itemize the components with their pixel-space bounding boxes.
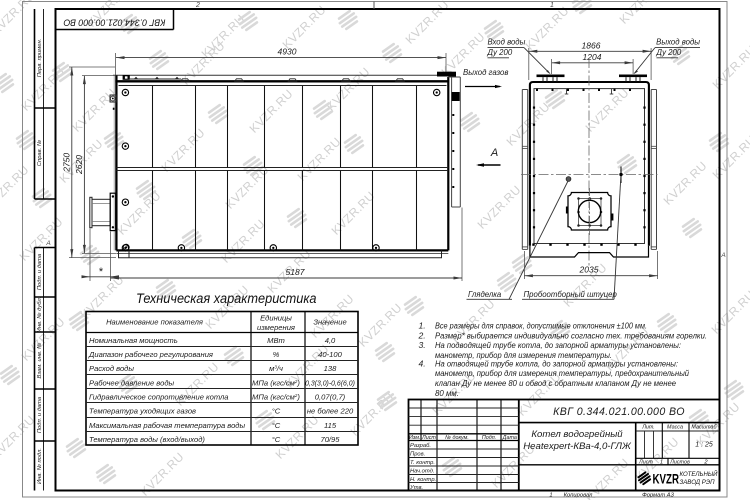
svg-text:40-100: 40-100 <box>318 350 342 359</box>
svg-text:Максимальная рабочая температу: Максимальная рабочая температура воды <box>89 421 246 430</box>
svg-text:Листов: Листов <box>669 459 690 465</box>
svg-text:Подп.: Подп. <box>482 435 496 441</box>
svg-text:Единицы: Единицы <box>260 314 292 323</box>
svg-text:КВГ 0.344.021.00.000 ВО: КВГ 0.344.021.00.000 ВО <box>553 406 685 418</box>
svg-text:4930: 4930 <box>278 47 297 57</box>
svg-text:Все размеры для справок, допус: Все размеры для справок, допустимые откл… <box>435 321 647 331</box>
svg-text:Вход воды: Вход воды <box>488 38 526 47</box>
svg-text:%: % <box>273 350 280 359</box>
svg-text:Копировал: Копировал <box>564 492 594 498</box>
svg-text:0,07(0,7): 0,07(0,7) <box>315 392 346 401</box>
svg-text:МВт: МВт <box>267 336 285 345</box>
svg-text:1: 1 <box>550 2 554 9</box>
svg-text:3.: 3. <box>419 340 426 350</box>
svg-text:ЗАВОД РЭП: ЗАВОД РЭП <box>680 479 715 486</box>
svg-text:Номинальная мощность: Номинальная мощность <box>89 336 178 345</box>
svg-text:манометр, прибор для измерения: манометр, прибор для измерения температу… <box>435 368 689 378</box>
svg-text:На отводящей трубе котла, до з: На отводящей трубе котла, до запорной ар… <box>435 358 679 368</box>
svg-text:2620: 2620 <box>74 155 84 175</box>
svg-text:Выход воды: Выход воды <box>656 38 700 47</box>
svg-text:Расход воды: Расход воды <box>89 364 134 373</box>
svg-text:1 : 25: 1 : 25 <box>695 442 713 449</box>
svg-text:Масса: Масса <box>667 425 683 431</box>
svg-text:Котел водогрейный: Котел водогрейный <box>531 429 623 440</box>
svg-text:Изм.: Изм. <box>409 435 421 441</box>
svg-text:°С: °С <box>272 421 281 430</box>
svg-text:м3/ч: м3/ч <box>269 364 283 373</box>
svg-text:Наименование показателя: Наименование показателя <box>106 318 203 327</box>
svg-text:не более 220: не более 220 <box>307 407 354 416</box>
svg-text:Температура воды (вход/выход): Температура воды (вход/выход) <box>89 435 205 444</box>
svg-text:°С: °С <box>272 407 281 416</box>
svg-text:1: 1 <box>549 492 552 498</box>
svg-text:2035: 2035 <box>579 265 599 275</box>
svg-text:Диапазон рабочего регулировани: Диапазон рабочего регулирования <box>88 350 213 359</box>
svg-text:Размер* выбирается индивидуаль: Размер* выбирается индивидуально согласн… <box>435 330 707 340</box>
svg-text:1: 1 <box>660 459 663 465</box>
svg-text:Рабочее давление воды: Рабочее давление воды <box>89 378 175 387</box>
svg-text:Утв.: Утв. <box>409 485 423 491</box>
svg-text:Heatexpert-КВа-4,0-ГЛЖ: Heatexpert-КВа-4,0-ГЛЖ <box>523 441 632 452</box>
svg-text:Лист: Лист <box>638 459 653 465</box>
svg-text:1204: 1204 <box>583 52 602 62</box>
svg-text:Выход газов: Выход газов <box>463 68 508 77</box>
svg-text:70/95: 70/95 <box>320 435 340 444</box>
svg-text:°С: °С <box>272 435 281 444</box>
svg-text:Дата: Дата <box>502 435 517 441</box>
svg-text:Инв. № подл.: Инв. № подл. <box>37 448 43 484</box>
svg-text:Разраб.: Разраб. <box>410 443 431 449</box>
svg-text:Справ. №: Справ. № <box>37 140 43 166</box>
svg-text:Ду 200: Ду 200 <box>487 48 513 57</box>
svg-text:0,3(3,0)-0,6(6,0): 0,3(3,0)-0,6(6,0) <box>305 380 355 387</box>
svg-text:А: А <box>490 147 498 159</box>
svg-text:клапан Ду не менее 80 и обвод: клапан Ду не менее 80 и обвод с обратным… <box>435 378 676 388</box>
svg-text:2: 2 <box>195 2 200 9</box>
svg-text:А: А <box>45 240 50 247</box>
svg-text:№ докум.: № докум. <box>445 435 469 441</box>
svg-text:Инв. № дубл.: Инв. № дубл. <box>37 297 43 333</box>
svg-text:Лит.: Лит. <box>641 425 655 431</box>
svg-text:Температура уходящих газов: Температура уходящих газов <box>89 407 196 416</box>
svg-text:138: 138 <box>324 364 337 373</box>
svg-text:115: 115 <box>324 421 337 430</box>
svg-text:КОТЕЛЬНЫЙ: КОТЕЛЬНЫЙ <box>680 469 718 478</box>
svg-text:МПа (кгс/см2): МПа (кгс/см2) <box>252 392 300 401</box>
svg-text:1.: 1. <box>419 321 426 331</box>
svg-text:4.: 4. <box>419 358 426 368</box>
svg-text:измерения: измерения <box>257 323 295 332</box>
svg-text:А: А <box>720 252 725 259</box>
svg-text:Подп. и дата: Подп. и дата <box>37 396 43 433</box>
svg-text:4,0: 4,0 <box>325 336 336 345</box>
svg-text:*: * <box>98 266 103 278</box>
svg-text:Пров.: Пров. <box>410 451 425 457</box>
svg-text:80 мм.: 80 мм. <box>435 388 459 398</box>
svg-text:Значение: Значение <box>313 318 346 327</box>
svg-text:KVZR: KVZR <box>653 471 680 487</box>
svg-text:5187: 5187 <box>286 267 305 277</box>
svg-text:2.: 2. <box>418 330 426 340</box>
svg-text:Т. контр.: Т. контр. <box>410 460 435 466</box>
svg-text:Подп. и дата: Подп. и дата <box>37 253 43 290</box>
svg-text:Ду 200: Ду 200 <box>656 48 682 57</box>
svg-text:Н. контр.: Н. контр. <box>410 477 436 483</box>
svg-text:1866: 1866 <box>582 40 601 50</box>
svg-text:Лист: Лист <box>421 435 436 441</box>
svg-text:Масштаб: Масштаб <box>691 425 717 431</box>
svg-text:Взам. инв. №: Взам. инв. № <box>37 343 43 379</box>
svg-text:На подводящей трубе котла, до: На подводящей трубе котла, до запорной а… <box>435 340 682 350</box>
svg-text:Пробоотборный штуцер: Пробоотборный штуцер <box>524 290 618 299</box>
svg-text:Гидравлическое сопротивление к: Гидравлическое сопротивление котла <box>89 392 229 401</box>
svg-text:Формат А3: Формат А3 <box>642 492 674 498</box>
svg-text:Гляделка: Гляделка <box>468 290 502 299</box>
svg-text:КВГ 0.344.021.00.000 ВО: КВГ 0.344.021.00.000 ВО <box>63 17 165 27</box>
svg-text:2750: 2750 <box>62 153 72 173</box>
svg-text:МПа (кгс/см2): МПа (кгс/см2) <box>252 378 300 387</box>
svg-text:Нач.отд.: Нач.отд. <box>410 468 434 474</box>
svg-text:Перв. примен.: Перв. примен. <box>37 39 43 78</box>
svg-text:Техническая характеристика: Техническая характеристика <box>136 291 317 306</box>
